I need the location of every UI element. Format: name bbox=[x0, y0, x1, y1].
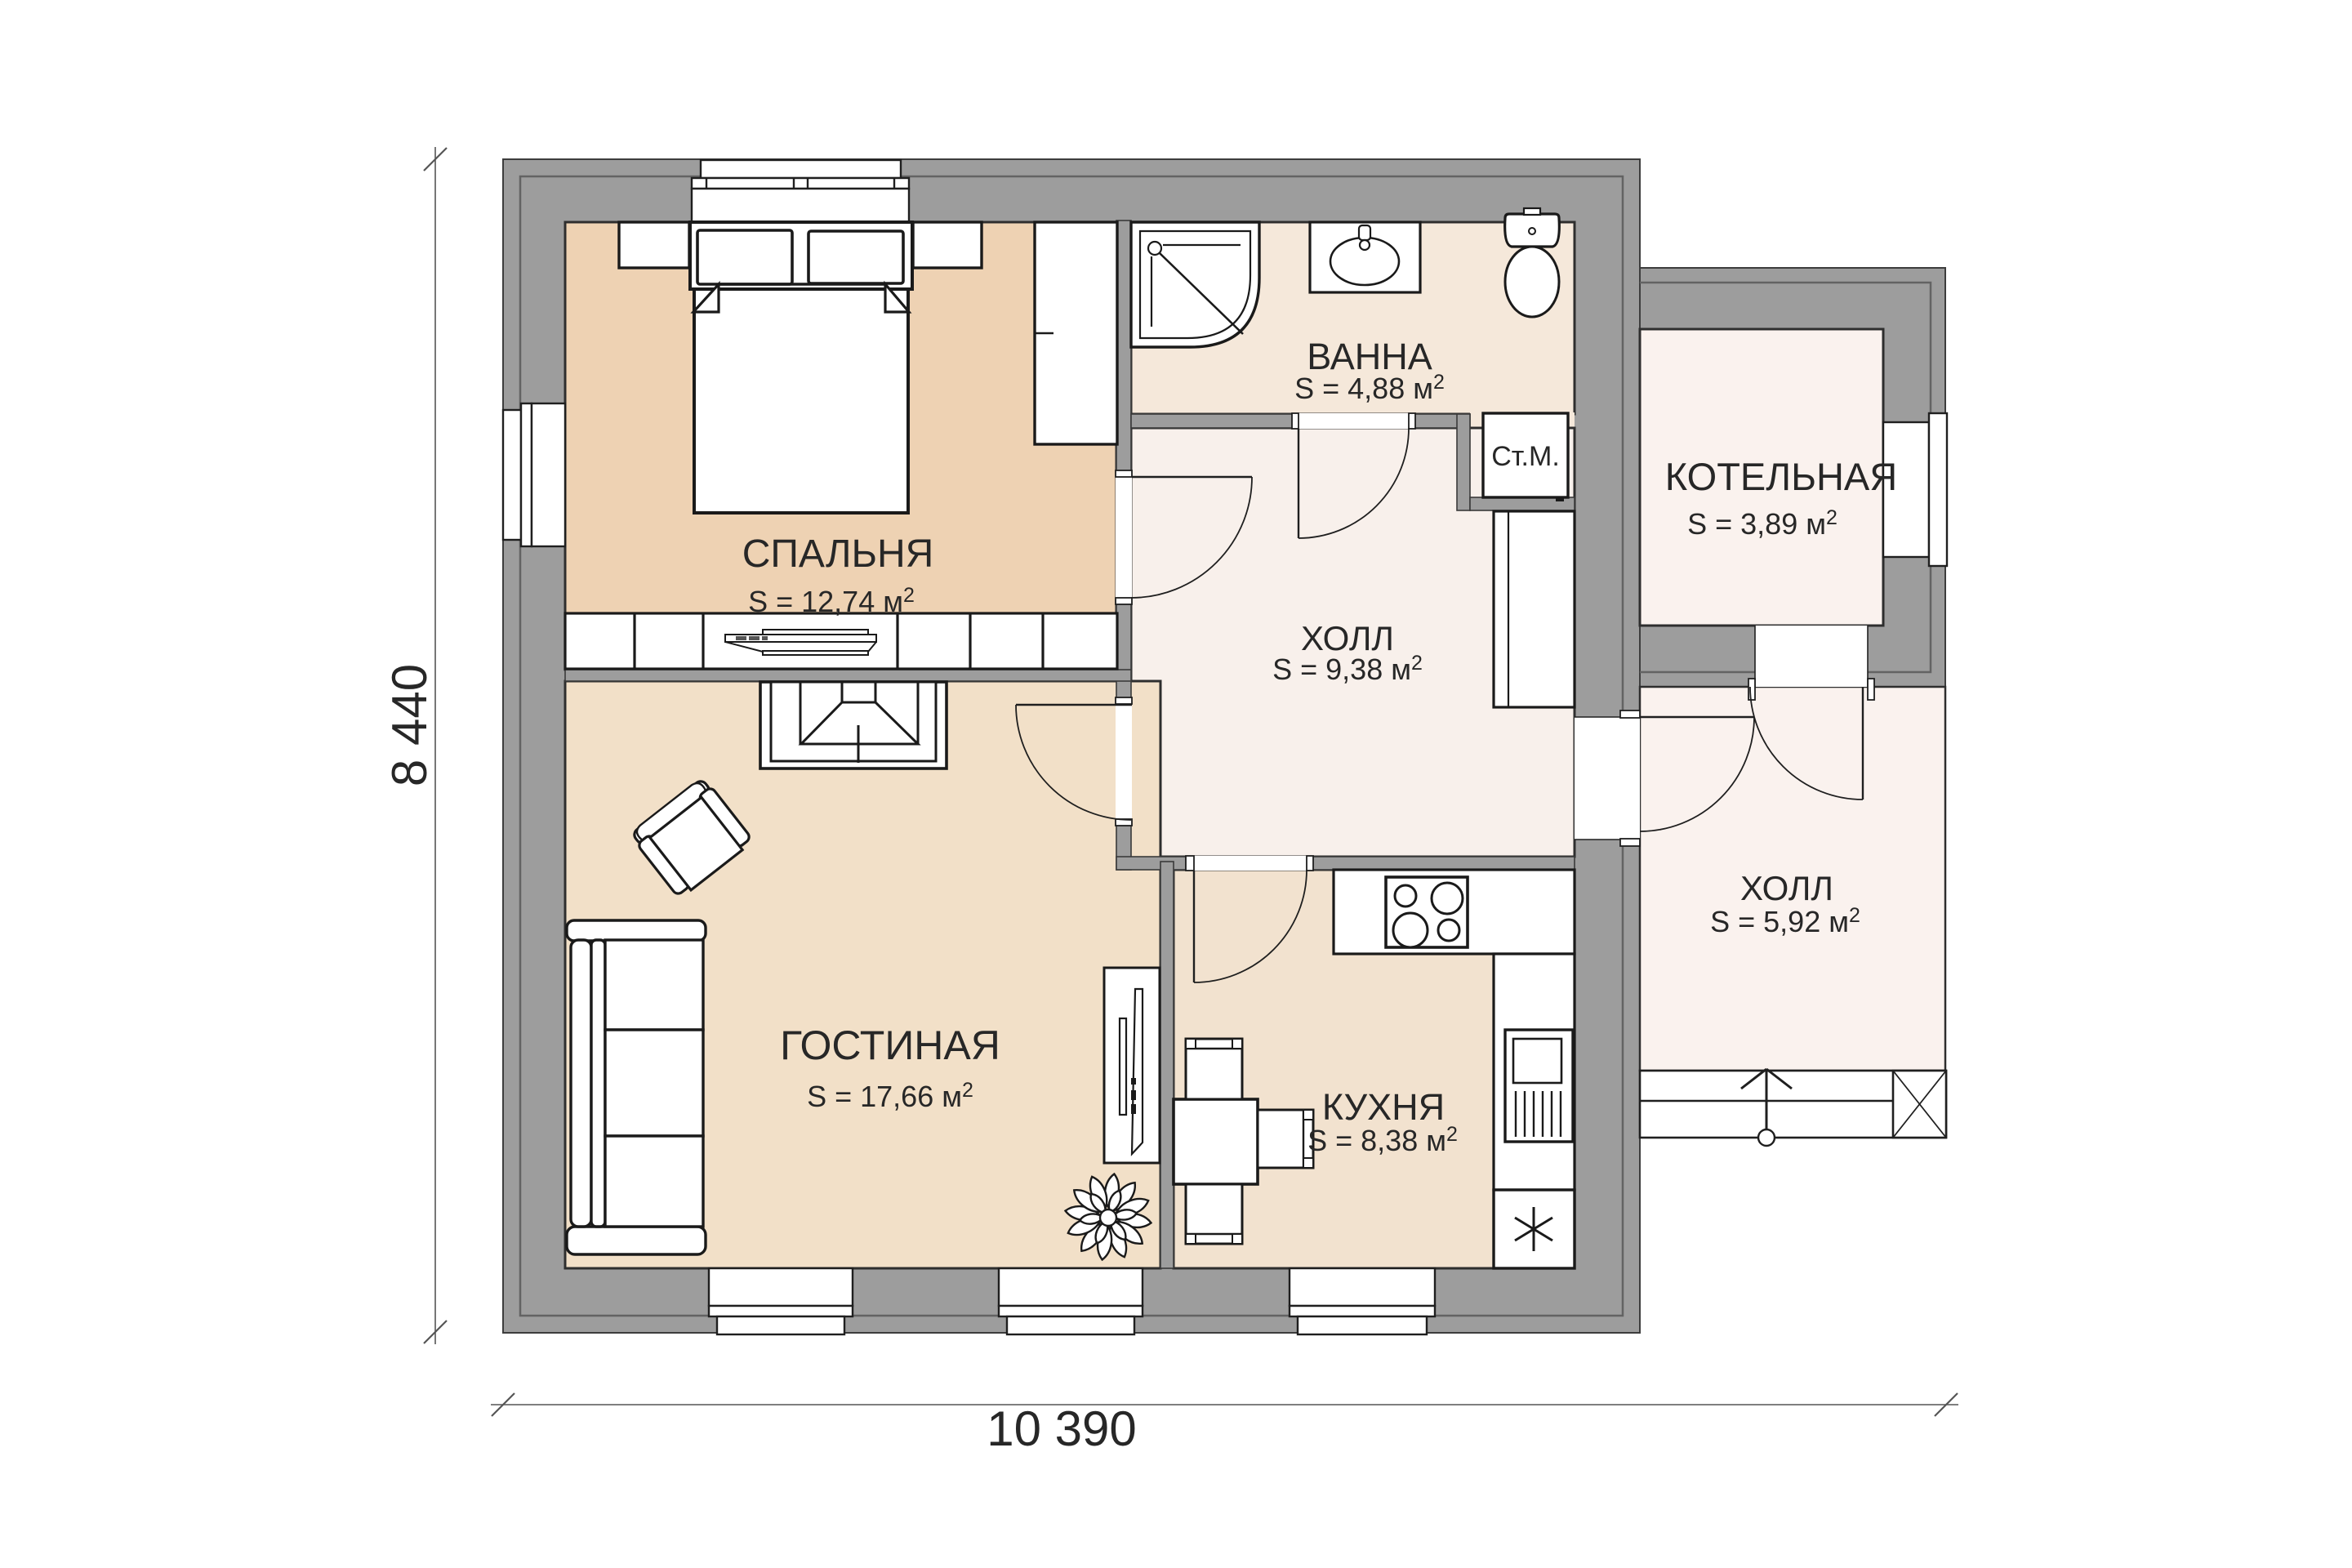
svg-text:ХОЛЛ: ХОЛЛ bbox=[1301, 619, 1394, 657]
svg-text:S = 12,74 м2: S = 12,74 м2 bbox=[748, 584, 915, 618]
svg-text:S = 17,66 м2: S = 17,66 м2 bbox=[807, 1079, 973, 1113]
svg-text:S = 5,92 м2: S = 5,92 м2 bbox=[1710, 904, 1860, 938]
svg-text:КУХНЯ: КУХНЯ bbox=[1322, 1086, 1445, 1128]
svg-text:S = 3,89 м2: S = 3,89 м2 bbox=[1687, 506, 1837, 541]
svg-text:ХОЛЛ: ХОЛЛ bbox=[1740, 869, 1833, 907]
svg-text:СПАЛЬНЯ: СПАЛЬНЯ bbox=[742, 532, 934, 576]
svg-text:S = 8,38 м2: S = 8,38 м2 bbox=[1307, 1123, 1458, 1157]
svg-text:ГОСТИНАЯ: ГОСТИНАЯ bbox=[780, 1022, 1000, 1068]
svg-text:S = 4,88 м2: S = 4,88 м2 bbox=[1294, 371, 1445, 405]
svg-text:Ст.М.: Ст.М. bbox=[1491, 441, 1560, 472]
svg-text:10 390: 10 390 bbox=[987, 1401, 1137, 1456]
svg-text:8 440: 8 440 bbox=[382, 664, 437, 786]
svg-text:КОТЕЛЬНАЯ: КОТЕЛЬНАЯ bbox=[1665, 455, 1897, 498]
svg-text:S = 9,38 м2: S = 9,38 м2 bbox=[1272, 652, 1423, 686]
